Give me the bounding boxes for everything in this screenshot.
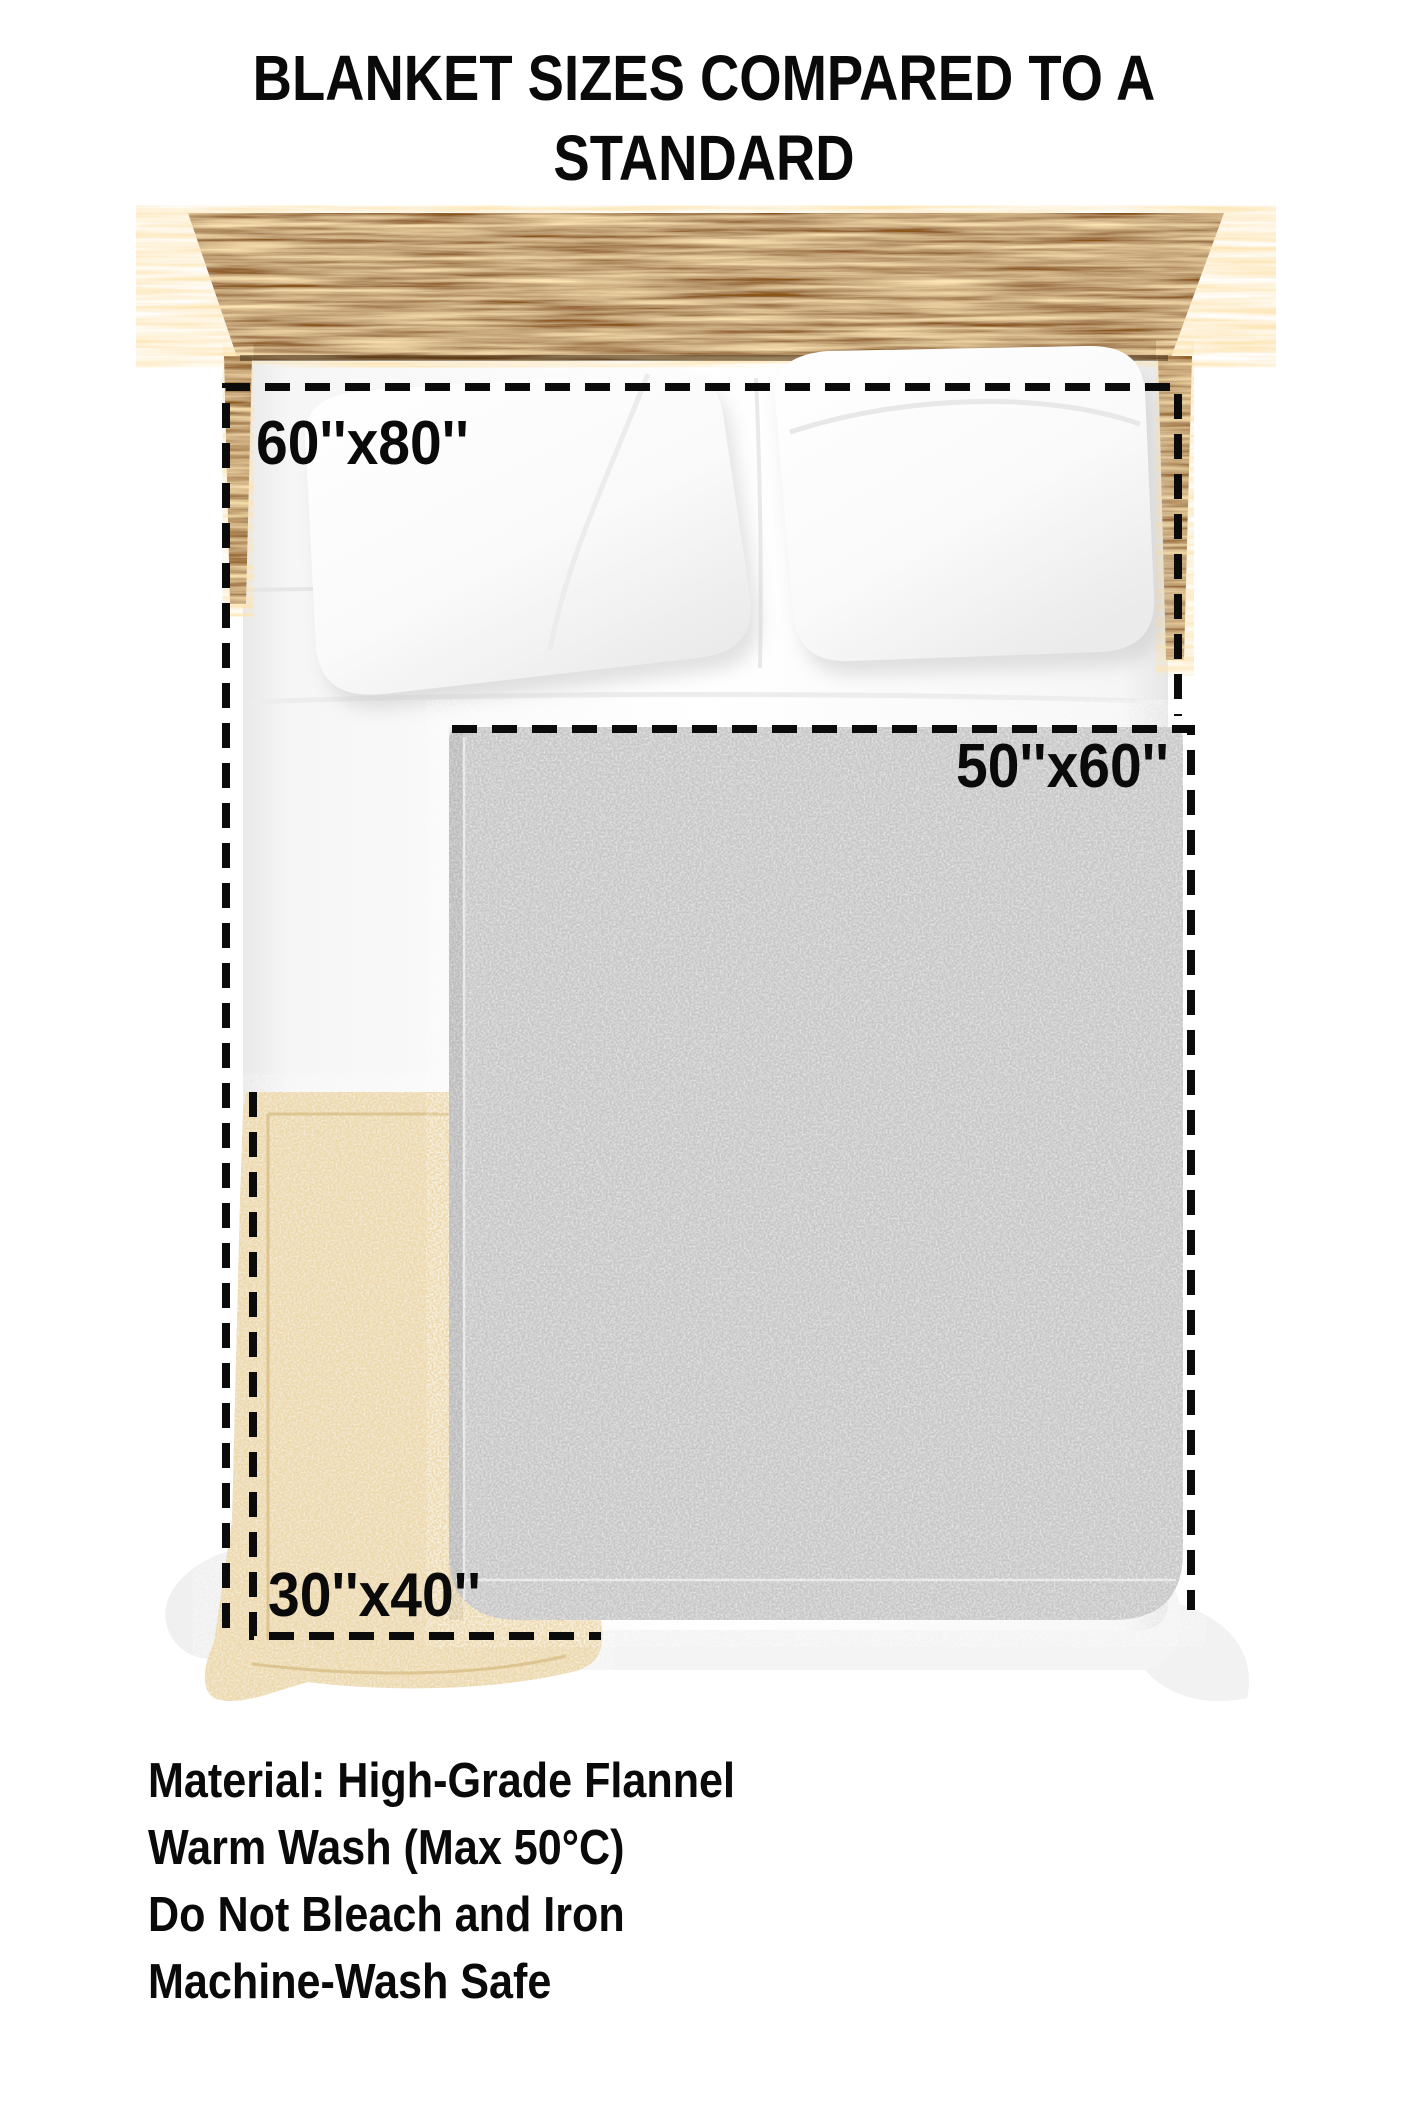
label-60x80: 60''x80'' [256,408,469,479]
blanket-50x60-edge-shade [449,727,463,1620]
headboard [188,213,1224,360]
care-line-material: Material: High-Grade Flannel [148,1748,735,1815]
label-50x60: 50''x60'' [956,731,1169,802]
care-line-bleach: Do Not Bleach and Iron [148,1882,735,1949]
blanket-50x60 [449,727,1183,1620]
label-30x40: 30''x40'' [268,1560,481,1631]
care-info: Material: High-Grade Flannel Warm Wash (… [148,1748,735,2016]
pillow-right [775,346,1154,661]
care-line-wash: Warm Wash (Max 50°C) [148,1815,735,1882]
care-line-machine: Machine-Wash Safe [148,1949,735,2016]
page: BLANKET SIZES COMPARED TO A STANDARD QUE… [0,0,1408,2112]
